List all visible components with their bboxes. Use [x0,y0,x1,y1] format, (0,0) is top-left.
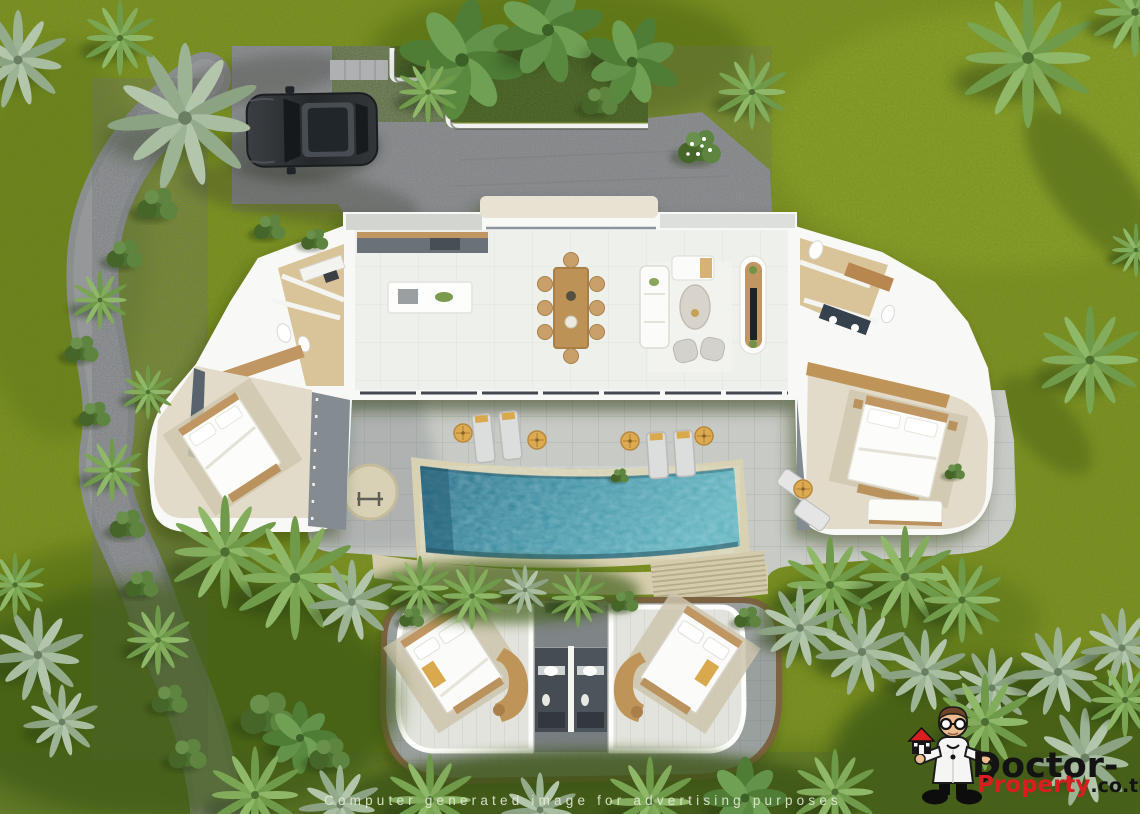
daybed-cushion [700,258,712,278]
brand-text-bottom: Property.co.th [977,772,1140,798]
dining-chair [564,349,579,364]
living-area [355,230,788,393]
table-decor [566,291,576,301]
sofa-pillow [649,278,659,286]
lounger-pillow [475,415,489,423]
sink [544,666,558,676]
sink [583,666,597,676]
roof-band [660,214,795,228]
tv-screen [750,288,757,340]
left-deck [308,392,350,530]
coffee-table [680,285,710,329]
mascot-glasses [941,719,951,729]
car-sunroof [308,107,349,152]
coffee-table-decor [691,309,699,317]
guest-suite-right [611,591,761,751]
dining-chair [590,277,605,292]
entry-canopy [480,196,658,218]
toilet [542,694,550,706]
dining-chair [564,253,579,268]
car-windshield [283,98,300,162]
island-sink [398,289,418,304]
table-bowl [565,316,577,328]
pool-shimmer [420,466,740,559]
shower [538,712,565,728]
car-mirror [287,167,296,174]
toilet [581,694,589,706]
sink [851,324,859,332]
dining-chair [538,325,553,340]
car-mirror [285,86,294,93]
caption-text: Computer generated image for advertising… [324,793,842,808]
dining-table [554,268,588,348]
swimming-pool [411,457,750,568]
desk-stool [631,706,643,718]
sink [829,316,837,324]
island-plant [435,292,453,302]
lounge-set [640,256,732,372]
tv-plant [749,266,757,274]
dining-chair [538,301,553,316]
bathroom-walkout [535,732,607,752]
lounger-pillow [676,431,689,439]
cooktop [430,238,460,250]
mascot-glasses [955,719,965,729]
desk-stool [493,704,505,716]
stethoscope-chestpiece [951,755,956,760]
car-rear-window [356,103,369,155]
dining-chair [538,277,553,292]
aerial-villa-render: Computer generated image for advertising… [0,0,1140,814]
lounger-pillow [649,433,662,441]
pavilion-bathrooms [535,601,607,752]
bathroom-divider-wall [568,646,574,734]
brand-text-red: Property [977,772,1090,798]
dining-chair [590,325,605,340]
scene-canvas: Computer generated image for advertising… [0,0,1140,814]
kitchen-counter-wood [357,232,488,238]
lounger-pillow [501,412,515,420]
paver-pad [330,60,388,80]
shower [577,712,604,728]
tv-console [740,256,766,354]
brand-text-suffix: .co.th [1090,775,1140,797]
mascot-hand [915,754,925,764]
pebble-circle [343,465,397,519]
roof-band [346,214,482,230]
dining-chair [590,301,605,316]
tv-plant [749,340,757,348]
